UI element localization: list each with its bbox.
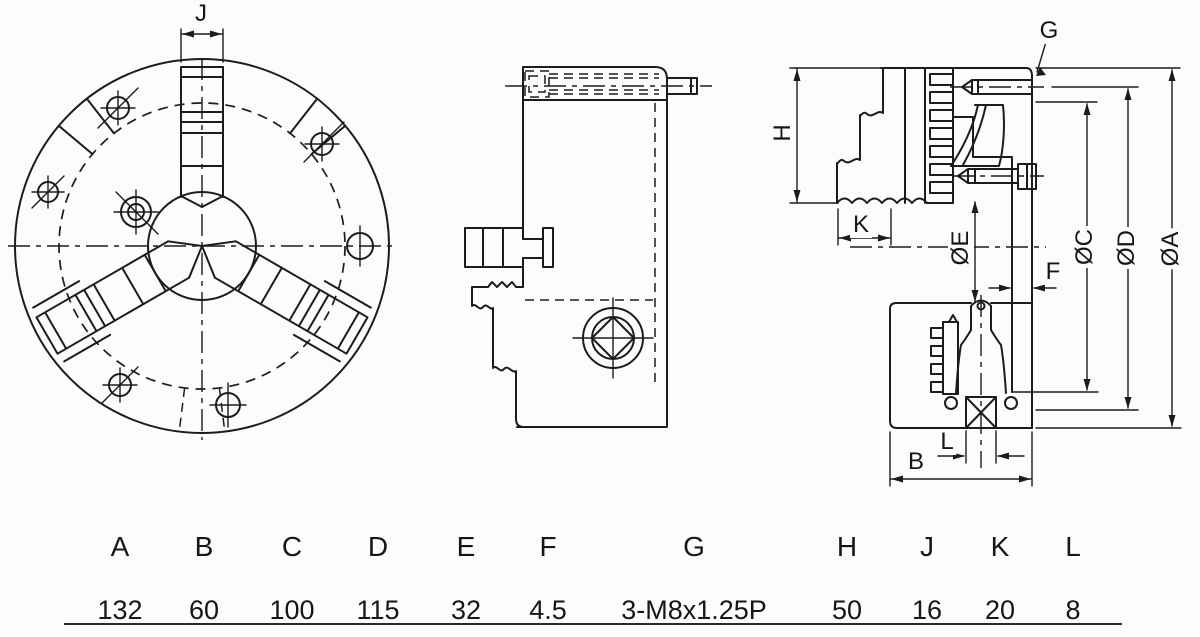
spec-value: 115 [356, 597, 399, 624]
spec-label: J [912, 533, 942, 561]
front-view [8, 29, 397, 440]
chuck-line-drawing [0, 0, 1200, 637]
dim-label-B: B [905, 449, 927, 475]
side-view [465, 67, 712, 427]
spec-label: L [1065, 533, 1081, 561]
spec-col-K: K 20 [985, 533, 1015, 624]
spec-value: 8 [1065, 597, 1081, 624]
spec-value: 4.5 [529, 597, 567, 624]
spec-label: B [189, 533, 219, 561]
spec-col-D: D 115 [356, 533, 399, 624]
spec-value: 100 [269, 597, 314, 624]
dim-label-D: ØD [1114, 227, 1140, 269]
dim-label-C: ØC [1072, 226, 1098, 268]
spec-value: 16 [912, 597, 942, 624]
spec-value: 50 [832, 597, 862, 624]
dim-label-K: K [850, 212, 872, 238]
dim-label-L: L [937, 429, 956, 455]
spec-value: 60 [189, 597, 219, 624]
spec-value: 132 [97, 597, 142, 624]
spec-label: D [356, 533, 399, 561]
spec-label: H [832, 533, 862, 561]
dim-label-A: ØA [1158, 229, 1184, 270]
dim-J-lines [181, 29, 223, 62]
drawing-sheet: J G H K ØE F ØC ØD ØA L B A 132 B 60 C 1… [0, 0, 1200, 637]
spec-label: F [529, 533, 567, 561]
spec-label: C [269, 533, 314, 561]
spec-col-L: L 8 [1065, 533, 1081, 624]
dim-label-H: H [770, 121, 796, 144]
dim-label-E: ØE [948, 228, 974, 269]
table-rule [64, 623, 1122, 625]
dim-label-F: F [1043, 259, 1064, 285]
spec-col-E: E 32 [451, 533, 481, 624]
dim-label-G: G [1037, 18, 1062, 44]
spec-col-A: A 132 [97, 533, 142, 624]
spec-value: 3-M8x1.25P [621, 597, 767, 624]
spec-col-C: C 100 [269, 533, 314, 624]
spec-col-H: H 50 [832, 533, 862, 624]
dim-label-J: J [192, 1, 210, 27]
spec-label: G [621, 533, 767, 561]
spec-label: E [451, 533, 481, 561]
spec-col-G: G 3-M8x1.25P [621, 533, 767, 624]
spec-col-B: B 60 [189, 533, 219, 624]
spec-col-J: J 16 [912, 533, 942, 624]
spec-label: K [985, 533, 1015, 561]
spec-value: 32 [451, 597, 481, 624]
spec-value: 20 [985, 597, 1015, 624]
spec-col-F: F 4.5 [529, 533, 567, 624]
spec-label: A [97, 533, 142, 561]
